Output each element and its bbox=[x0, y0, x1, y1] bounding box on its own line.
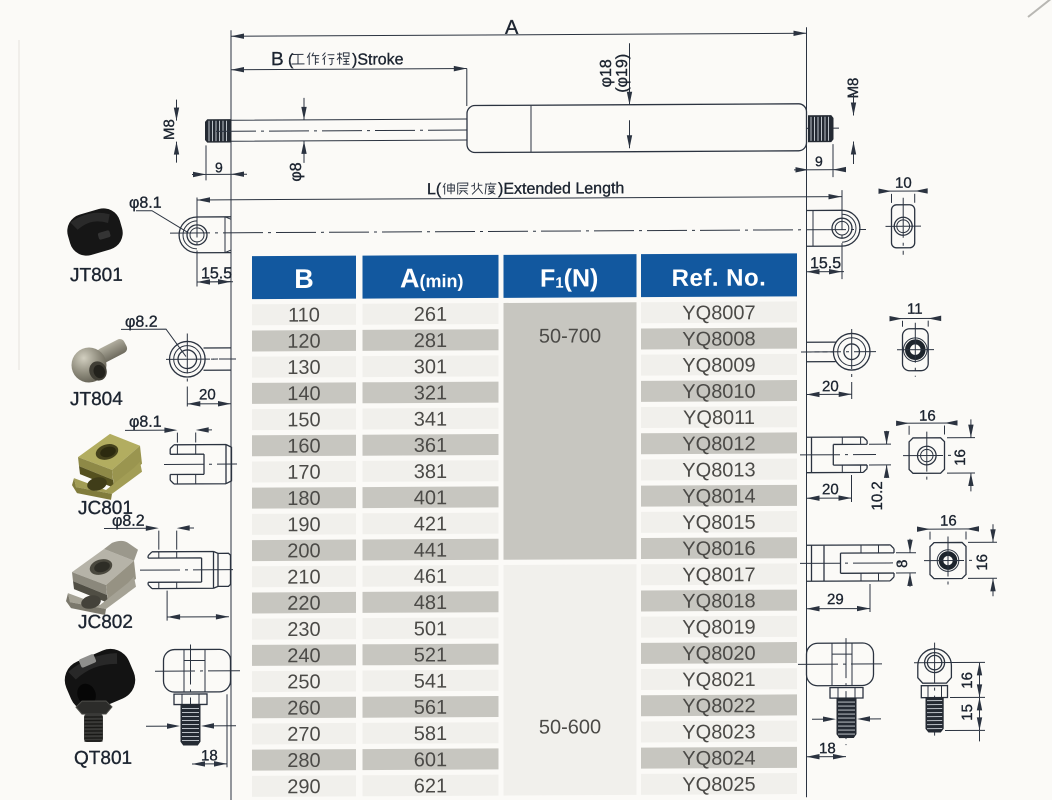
svg-text:)Stroke: )Stroke bbox=[352, 51, 404, 68]
svg-text:(φ19): (φ19) bbox=[614, 54, 631, 93]
svg-text:Ref. No.: Ref. No. bbox=[672, 264, 767, 291]
svg-text:290: 290 bbox=[287, 776, 320, 798]
svg-text:261: 261 bbox=[414, 304, 447, 326]
svg-text:441: 441 bbox=[414, 540, 447, 562]
svg-text:YQ8007: YQ8007 bbox=[682, 302, 755, 324]
svg-text:200: 200 bbox=[287, 540, 320, 562]
svg-text:210: 210 bbox=[287, 566, 320, 588]
svg-text:16: 16 bbox=[940, 512, 957, 529]
svg-text:)Extended Length: )Extended Length bbox=[498, 180, 624, 198]
svg-text:521: 521 bbox=[414, 644, 447, 666]
svg-text:281: 281 bbox=[414, 330, 447, 352]
svg-text:501: 501 bbox=[414, 618, 447, 640]
svg-text:20: 20 bbox=[822, 378, 839, 395]
svg-text:20: 20 bbox=[199, 386, 216, 403]
svg-text:170: 170 bbox=[287, 462, 320, 484]
svg-text:250: 250 bbox=[287, 671, 320, 693]
svg-text:F1(N): F1(N) bbox=[540, 264, 598, 292]
svg-text:230: 230 bbox=[287, 619, 320, 641]
svg-text:621: 621 bbox=[414, 775, 447, 797]
svg-text:YQ8013: YQ8013 bbox=[682, 459, 755, 481]
svg-text:180: 180 bbox=[287, 488, 320, 510]
svg-text:YQ8012: YQ8012 bbox=[682, 433, 755, 455]
svg-text:YQ8019: YQ8019 bbox=[682, 617, 755, 639]
svg-text:220: 220 bbox=[287, 593, 320, 615]
svg-text:M8: M8 bbox=[161, 119, 178, 140]
svg-text:YQ8021: YQ8021 bbox=[682, 669, 755, 691]
svg-text:50-600: 50-600 bbox=[539, 716, 601, 738]
svg-text:140: 140 bbox=[287, 383, 320, 405]
svg-text:φ8.2: φ8.2 bbox=[125, 314, 158, 331]
svg-text:120: 120 bbox=[287, 331, 320, 353]
svg-text:9: 9 bbox=[815, 153, 823, 169]
svg-text:JT801: JT801 bbox=[70, 265, 123, 286]
svg-text:110: 110 bbox=[288, 304, 320, 326]
svg-text:421: 421 bbox=[414, 513, 447, 535]
svg-text:130: 130 bbox=[287, 357, 320, 379]
svg-text:361: 361 bbox=[414, 435, 447, 457]
svg-text:15.5: 15.5 bbox=[810, 255, 841, 272]
svg-text:461: 461 bbox=[414, 566, 447, 588]
svg-text:YQ8024: YQ8024 bbox=[682, 748, 755, 770]
svg-text:φ8.1: φ8.1 bbox=[129, 414, 162, 431]
svg-text:A: A bbox=[505, 17, 519, 39]
svg-text:JC802: JC802 bbox=[78, 612, 133, 633]
svg-text:YQ8018: YQ8018 bbox=[682, 590, 755, 612]
svg-text:YQ8015: YQ8015 bbox=[682, 512, 755, 534]
svg-text:YQ8025: YQ8025 bbox=[682, 774, 755, 796]
svg-text:B: B bbox=[271, 49, 284, 70]
svg-text:280: 280 bbox=[287, 750, 320, 772]
svg-text:150: 150 bbox=[287, 409, 320, 431]
svg-text:YQ8020: YQ8020 bbox=[682, 643, 755, 665]
svg-text:B: B bbox=[294, 264, 313, 294]
svg-text:29: 29 bbox=[827, 591, 844, 608]
svg-text:YQ8008: YQ8008 bbox=[682, 328, 755, 350]
svg-text:190: 190 bbox=[287, 514, 320, 536]
svg-text:381: 381 bbox=[414, 461, 447, 483]
svg-text:341: 341 bbox=[414, 409, 447, 431]
svg-text:8: 8 bbox=[894, 560, 911, 568]
svg-text:16: 16 bbox=[974, 554, 991, 571]
svg-text:541: 541 bbox=[414, 671, 447, 693]
svg-text:YQ8023: YQ8023 bbox=[682, 721, 755, 743]
svg-text:YQ8016: YQ8016 bbox=[682, 538, 755, 560]
svg-text:401: 401 bbox=[414, 487, 447, 509]
svg-text:YQ8022: YQ8022 bbox=[682, 695, 755, 717]
svg-text:YQ8014: YQ8014 bbox=[682, 486, 755, 508]
svg-text:16: 16 bbox=[919, 408, 936, 425]
svg-text:16: 16 bbox=[952, 449, 969, 466]
svg-text:481: 481 bbox=[414, 592, 447, 614]
svg-text:15: 15 bbox=[959, 704, 976, 721]
svg-text:YQ8010: YQ8010 bbox=[682, 381, 755, 403]
svg-text:581: 581 bbox=[414, 723, 447, 745]
svg-text:10: 10 bbox=[895, 175, 912, 192]
svg-text:260: 260 bbox=[287, 697, 320, 719]
svg-text:20: 20 bbox=[822, 481, 839, 498]
svg-text:φ8.1: φ8.1 bbox=[129, 195, 162, 212]
svg-text:601: 601 bbox=[414, 749, 447, 771]
svg-text:9: 9 bbox=[215, 159, 223, 175]
svg-text:301: 301 bbox=[414, 356, 447, 378]
svg-text:YQ8011: YQ8011 bbox=[683, 407, 755, 429]
svg-text:321: 321 bbox=[414, 382, 447, 404]
svg-text:50-700: 50-700 bbox=[539, 325, 601, 347]
svg-text:JC801: JC801 bbox=[78, 498, 133, 519]
svg-text:561: 561 bbox=[414, 697, 447, 719]
svg-text:240: 240 bbox=[287, 645, 320, 667]
svg-text:L(: L( bbox=[427, 181, 442, 198]
svg-text:15.5: 15.5 bbox=[201, 265, 232, 282]
svg-text:QT801: QT801 bbox=[74, 748, 132, 769]
svg-text:160: 160 bbox=[287, 435, 320, 457]
svg-text:270: 270 bbox=[287, 724, 320, 746]
svg-text:16: 16 bbox=[959, 672, 976, 689]
svg-text:10.2: 10.2 bbox=[869, 481, 886, 510]
svg-text:φ8: φ8 bbox=[288, 162, 305, 181]
svg-text:11: 11 bbox=[907, 301, 923, 318]
svg-text:φ18: φ18 bbox=[598, 59, 615, 87]
svg-text:JT804: JT804 bbox=[70, 389, 123, 410]
svg-text:YQ8009: YQ8009 bbox=[682, 355, 755, 377]
svg-text:YQ8017: YQ8017 bbox=[682, 564, 755, 586]
